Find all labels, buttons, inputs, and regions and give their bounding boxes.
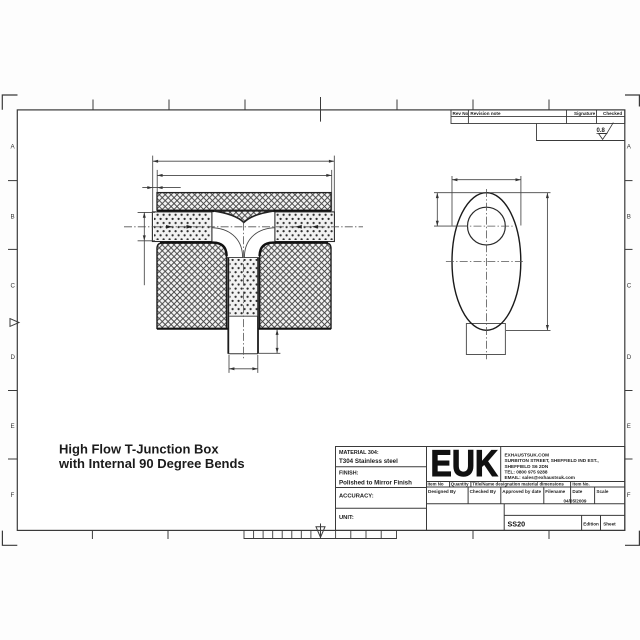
svg-text:B: B (11, 214, 15, 221)
svg-text:T304 Stainless steel: T304 Stainless steel (339, 458, 398, 465)
svg-text:D: D (627, 354, 632, 361)
svg-text:High Flow T-Junction Box: High Flow T-Junction Box (59, 442, 219, 457)
svg-text:Edition: Edition (583, 521, 599, 526)
svg-text:EUK: EUK (431, 443, 499, 484)
svg-text:C: C (627, 283, 632, 290)
svg-text:Signature: Signature (574, 111, 596, 116)
svg-text:Rev No: Rev No (453, 111, 469, 116)
svg-text:F: F (11, 492, 15, 499)
svg-text:C: C (11, 283, 16, 290)
svg-text:Item No: Item No (428, 482, 444, 487)
svg-text:EXHAUSTSUK.COM: EXHAUSTSUK.COM (505, 452, 550, 457)
svg-text:TEL: 0800 975 9288: TEL: 0800 975 9288 (505, 470, 548, 475)
svg-text:B: B (627, 214, 631, 221)
svg-text:SS20: SS20 (508, 519, 526, 528)
svg-text:MATERIAL 304:: MATERIAL 304: (339, 450, 379, 456)
svg-text:ACCURACY:: ACCURACY: (339, 494, 374, 500)
svg-text:D: D (11, 354, 16, 361)
svg-text:Designed By: Designed By (428, 489, 456, 494)
svg-text:Scale: Scale (596, 489, 608, 494)
svg-text:Item No.: Item No. (572, 482, 589, 487)
svg-text:Title/Name designation materia: Title/Name designation material dimensio… (472, 482, 564, 487)
svg-text:E: E (11, 423, 15, 430)
svg-text:Revision note: Revision note (470, 111, 501, 116)
svg-text:with Internal 90 Degree Bends: with Internal 90 Degree Bends (58, 456, 245, 471)
svg-text:SURBITON STREET, SHEFFIELD IND: SURBITON STREET, SHEFFIELD IND EST., (505, 458, 599, 463)
svg-text:E: E (627, 423, 631, 430)
svg-text:SHEFFIELD S6 2DN: SHEFFIELD S6 2DN (505, 464, 549, 469)
svg-text:Checked: Checked (603, 111, 622, 116)
svg-text:Sheet: Sheet (603, 521, 616, 526)
svg-text:EMAIL: sales@exhaustsuk.com: EMAIL: sales@exhaustsuk.com (505, 475, 575, 480)
svg-text:Filename: Filename (545, 489, 565, 494)
svg-text:Quantity: Quantity (451, 482, 469, 487)
svg-text:Checked By: Checked By (470, 489, 497, 494)
svg-text:F: F (627, 492, 631, 499)
svg-text:Polished to Mirror Finish: Polished to Mirror Finish (339, 479, 412, 486)
svg-text:UNIT:: UNIT: (339, 515, 354, 521)
svg-text:Date: Date (572, 489, 582, 494)
svg-text:04/05/2009: 04/05/2009 (564, 498, 587, 503)
svg-text:Approved by date: Approved by date (502, 489, 541, 494)
svg-text:FINISH:: FINISH: (339, 471, 359, 477)
